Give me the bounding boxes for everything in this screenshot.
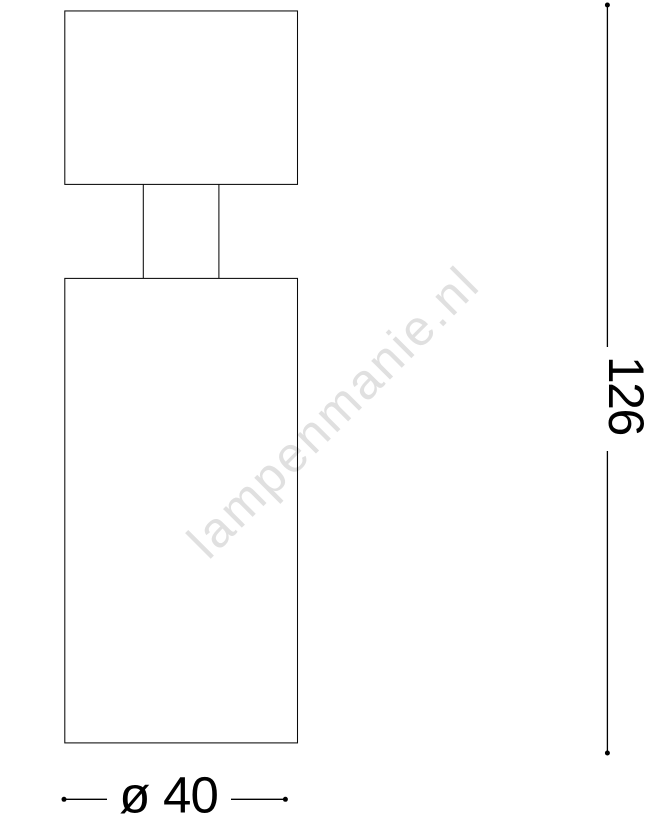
svg-text:ø 40: ø 40 [119, 767, 218, 824]
svg-text:126: 126 [598, 356, 654, 435]
